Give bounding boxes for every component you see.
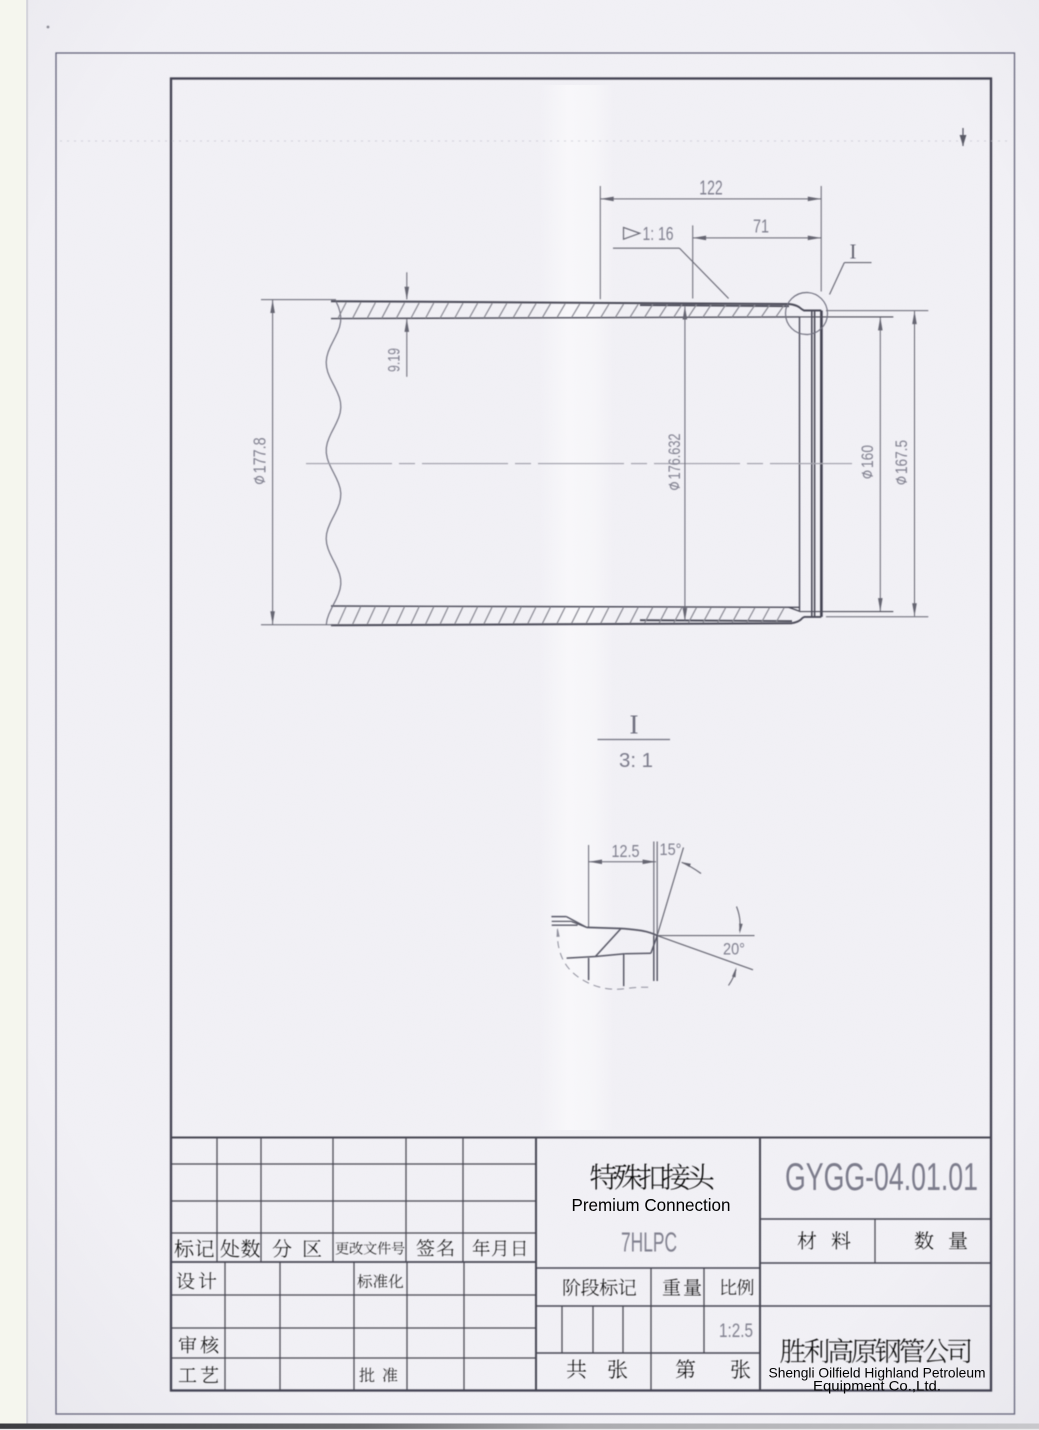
svg-text:GYGG-04.01.01: GYGG-04.01.01 <box>785 1156 978 1199</box>
svg-text:3: 1: 3: 1 <box>619 750 653 772</box>
svg-text:I: I <box>630 710 639 740</box>
svg-text:9.19: 9.19 <box>384 348 403 372</box>
svg-text:12.5: 12.5 <box>612 841 640 861</box>
svg-text:20°: 20° <box>723 940 745 959</box>
svg-text:15°: 15° <box>660 840 682 859</box>
svg-text:1: 16: 1: 16 <box>643 223 674 244</box>
svg-text:71: 71 <box>753 216 769 236</box>
svg-text:122: 122 <box>699 178 723 200</box>
svg-text:I: I <box>850 240 857 264</box>
svg-text:1:2.5: 1:2.5 <box>719 1321 753 1342</box>
svg-text:177.8: 177.8 <box>249 437 269 473</box>
svg-text:176.632: 176.632 <box>665 434 684 480</box>
svg-text:160: 160 <box>858 445 877 468</box>
svg-text:167.5: 167.5 <box>892 440 911 474</box>
svg-text:7HLPC: 7HLPC <box>621 1227 677 1258</box>
svg-text:Premium Connection: Premium Connection <box>572 1195 731 1215</box>
svg-text:Equipment Co.,Ltd.: Equipment Co.,Ltd. <box>813 1379 941 1394</box>
